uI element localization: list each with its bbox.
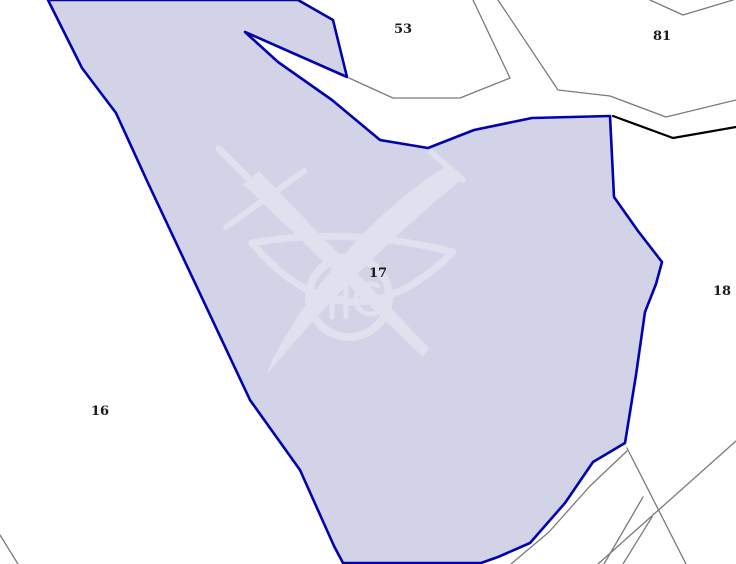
cadastral-map-canvas[interactable]: 5381171618: [0, 0, 736, 564]
map-viewport: 5381171618: [0, 0, 736, 564]
